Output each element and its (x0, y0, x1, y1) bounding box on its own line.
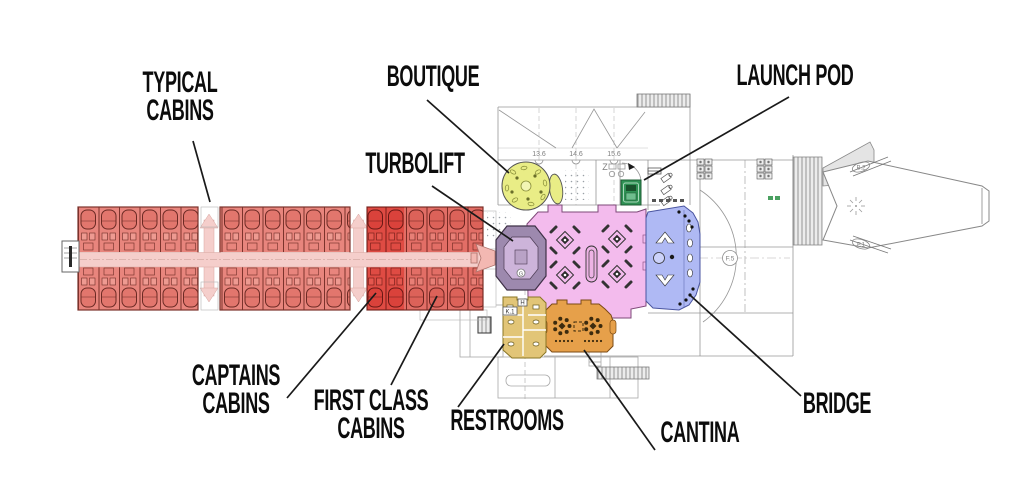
region-launch-pod (621, 180, 641, 205)
spaceship-floor-plan: 13.6 14.6 15.6 Z F.5 B.2 F.1 (0, 0, 1023, 487)
region-bridge (646, 206, 700, 310)
leader-cantina (584, 350, 655, 450)
turbolift-g-label: G (519, 272, 523, 278)
restroom-h-label: H (520, 301, 524, 307)
label-cantina: CANTINA (661, 419, 740, 447)
region-cabins (62, 207, 483, 310)
grid-label-a: 13.6 (532, 151, 546, 158)
grid-label-c: 15.6 (607, 151, 621, 158)
label-bridge: BRIDGE (803, 390, 871, 418)
engine-f1-label: F.1 (857, 243, 866, 249)
deck-f5-label: F.5 (726, 256, 735, 263)
label-turbolift: TURBOLIFT (365, 150, 464, 178)
engine-b2-label: B.2 (856, 166, 866, 172)
leader-typical-cabins (193, 141, 210, 202)
airlock-end-cap (62, 241, 79, 272)
leader-bridge (691, 296, 801, 396)
region-restrooms: K.1 H (503, 297, 546, 358)
label-captains-cabins: CAPTAINS CABINS (192, 362, 280, 418)
label-restrooms: RESTROOMS (450, 407, 563, 435)
label-boutique: BOUTIQUE (387, 63, 480, 91)
grid-label-b: 14.6 (569, 151, 583, 158)
label-typical-cabins: TYPICAL CABINS (143, 69, 218, 125)
label-first-class-cabins: FIRST CLASS CABINS (314, 387, 429, 443)
leader-restrooms (458, 344, 504, 407)
restroom-k1-label: K.1 (505, 310, 515, 316)
zone-z-label: Z (602, 162, 608, 172)
region-boutique (502, 162, 565, 210)
label-launch-pod: LAUNCH POD (737, 62, 854, 90)
